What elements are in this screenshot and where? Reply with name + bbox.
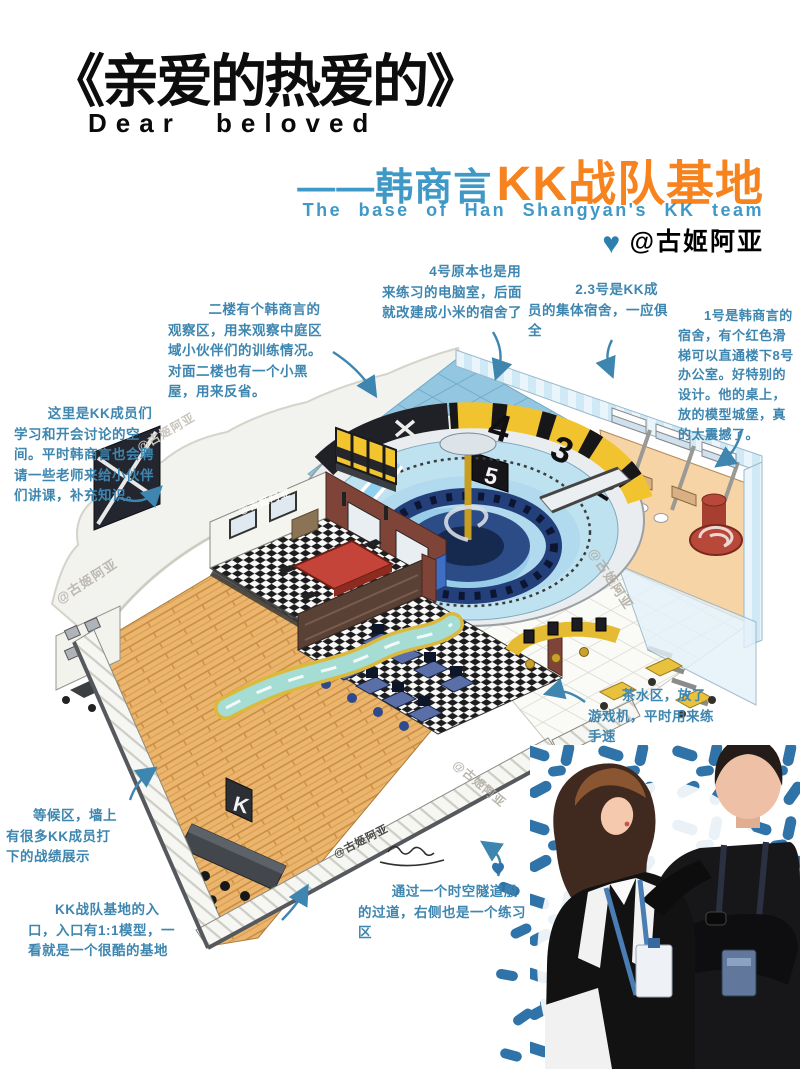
heart-icon: ♥ [602,227,620,260]
photo-couple [492,736,800,1069]
signature-scribble [380,846,444,865]
artist-name: @古姬阿亚 [630,228,764,256]
annotation-room4: 4号原本也是用来练习的电脑室，后面就改建成小米的宿舍了 [382,262,534,324]
annotation-corridor: 通过一个时空隧道般的过道，右侧也是一个练习区 [358,882,526,944]
artist-credit: ♥ @古姬阿亚 [602,222,764,261]
annotation-waiting-area: 等候区，墙上有很多KK成员打下的战绩展示 [6,806,118,868]
page-title: 《亲爱的热爱的》 [48,36,480,118]
annotation-study-space: 这里是KK成员们学习和开会讨论的空间。平时韩商言也会聘请一些老师来给小伙伴们讲课… [14,404,162,507]
annotation-dorm-2-3: 2.3号是KK成员的集体宿舍，一应俱全 [528,280,668,342]
page-title-en: Dear beloved [88,108,377,139]
annotation-tea-corner: 茶水区，放了游戏机，平时用来练手速 [588,686,716,748]
byline-en: The base of Han Shangyan's KK team [303,200,764,221]
annotation-observation-deck: 二楼有个韩商言的观察区，用来观察中庭区域小伙伴们的训练情况。对面二楼也有一个小黑… [168,300,326,403]
poster: 4 3 2 5 [0,0,800,1069]
annotation-room1: 1号是韩商言的宿舍，有个红色滑梯可以直通楼下8号办公室。好特别的设计。他的桌上，… [678,306,794,444]
annotation-entrance: KK战队基地的入口，入口有1:1模型，一看就是一个很酷的基地 [28,900,186,962]
